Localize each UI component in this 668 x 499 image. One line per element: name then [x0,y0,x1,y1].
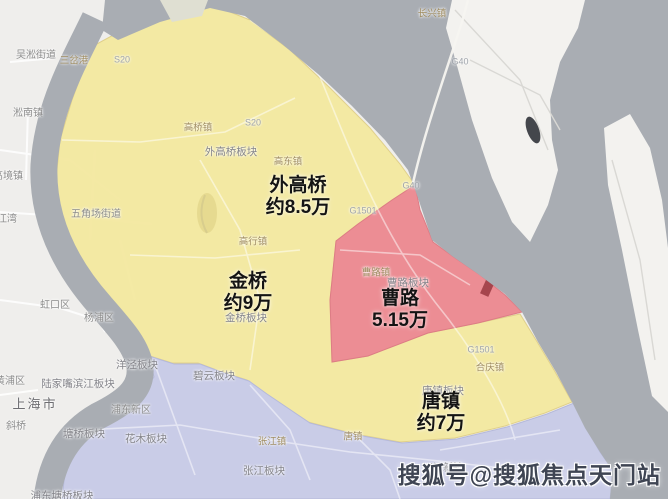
map-graphic [0,0,668,499]
park-patch [197,193,217,233]
map-canvas: 吴淞街道三岔港S20淞南镇高桥镇S20外高桥板块高东镇G40G1501高行镇金桥… [0,0,668,499]
watermark: 搜狐号@搜狐焦点天门站 [398,456,661,490]
